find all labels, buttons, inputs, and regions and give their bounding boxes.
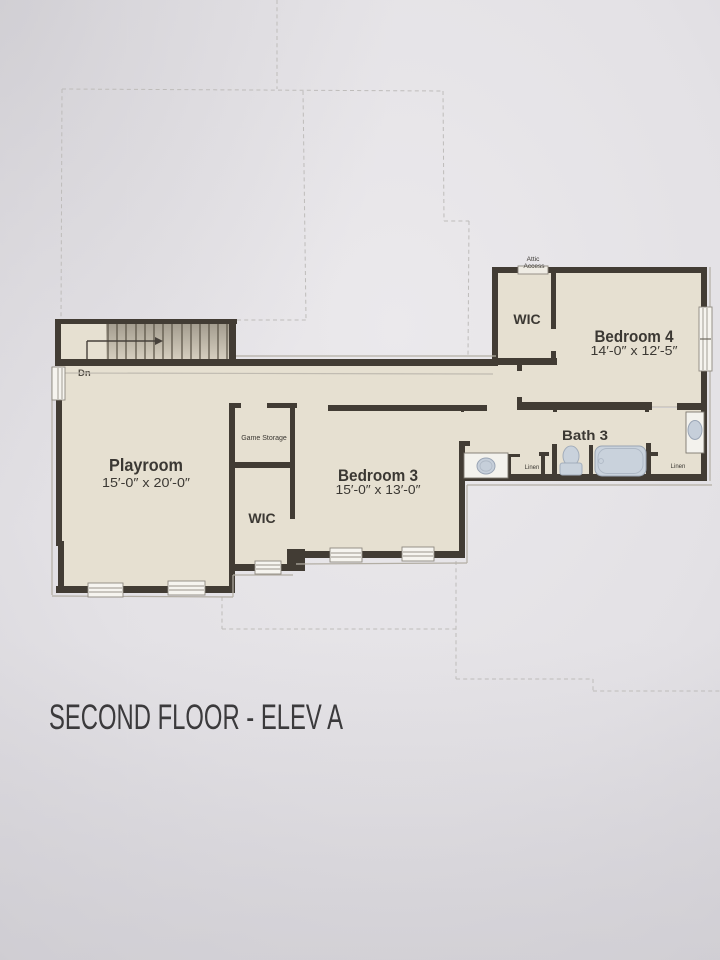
svg-text:WIC: WIC xyxy=(248,510,275,526)
svg-text:14′-0″ x 12′-5″: 14′-0″ x 12′-5″ xyxy=(591,343,678,358)
svg-text:Playroom: Playroom xyxy=(109,455,183,475)
svg-text:WIC: WIC xyxy=(513,311,540,327)
svg-text:15′-0″ x 13′-0″: 15′-0″ x 13′-0″ xyxy=(336,482,421,497)
svg-text:Linen: Linen xyxy=(671,464,686,470)
svg-text:Linen: Linen xyxy=(525,465,540,471)
svg-text:Attic: Attic xyxy=(527,256,540,263)
svg-text:Access: Access xyxy=(524,263,546,270)
svg-text:Bath 3: Bath 3 xyxy=(562,427,608,443)
svg-text:15′-0″ x 20′-0″: 15′-0″ x 20′-0″ xyxy=(102,475,190,490)
svg-text:SECOND FLOOR - ELEV A: SECOND FLOOR - ELEV A xyxy=(49,698,343,737)
svg-text:Game Storage: Game Storage xyxy=(241,435,287,442)
